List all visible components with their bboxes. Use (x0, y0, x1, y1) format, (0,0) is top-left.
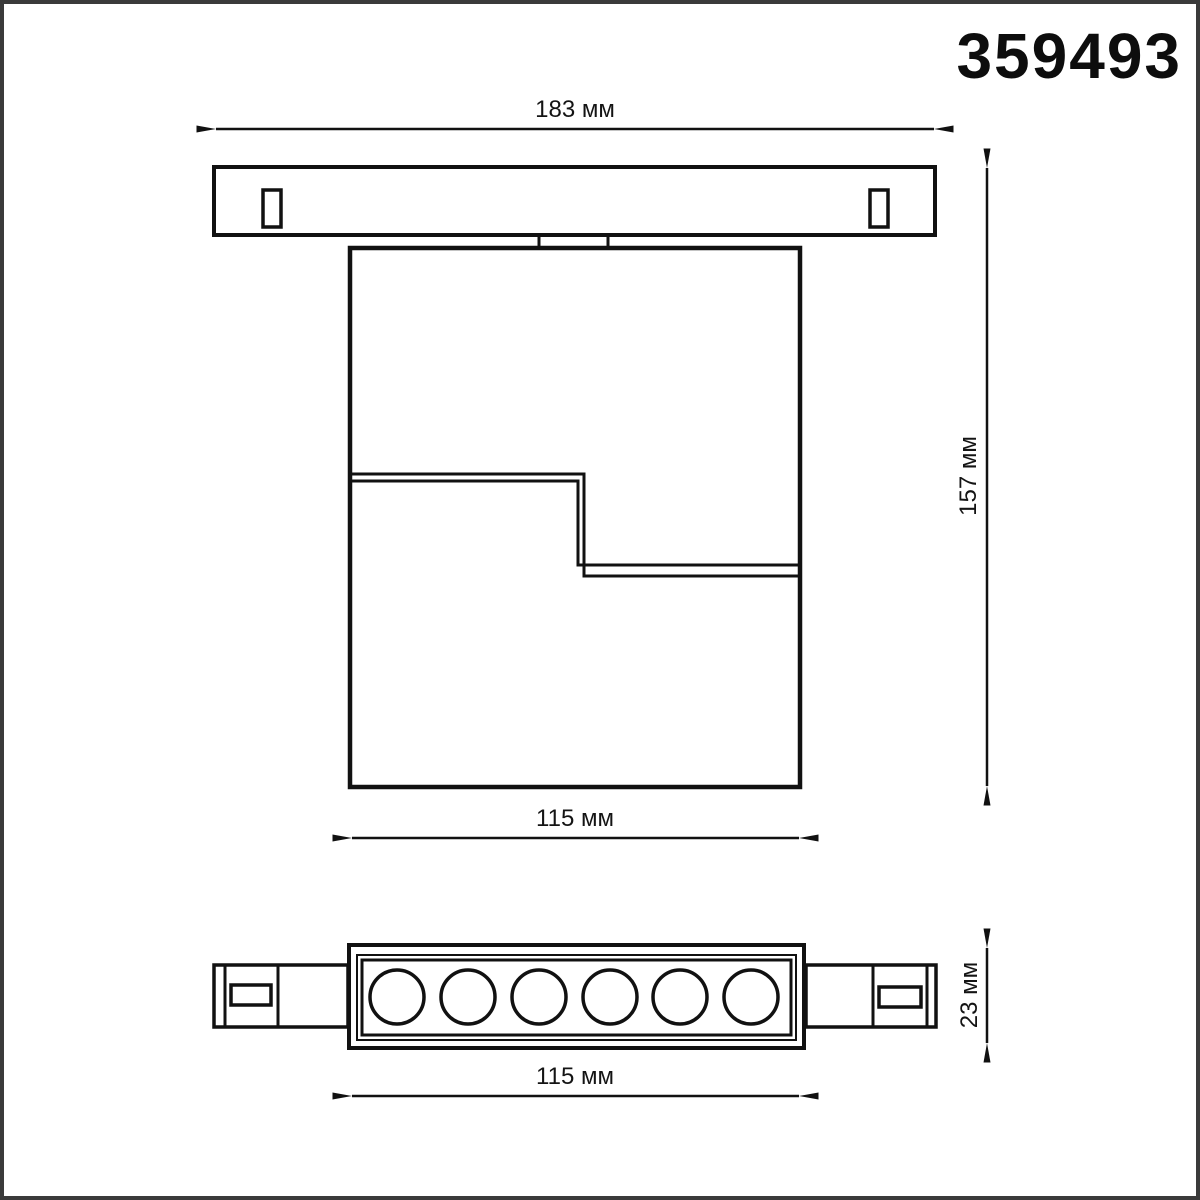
product-code: 359493 (956, 24, 1182, 88)
track-bar (214, 167, 935, 235)
led-lens-5 (653, 970, 707, 1024)
lamp-head-inner-frame (362, 960, 791, 1035)
fixture-body (350, 248, 800, 787)
led-lens-1 (370, 970, 424, 1024)
bottom-slot-right (879, 987, 921, 1007)
bottom-track-arm-right (806, 965, 936, 1027)
dimension-drawing (0, 0, 1200, 1200)
dim-label-head-thickness: 23 мм (957, 962, 983, 1028)
led-lens-6 (724, 970, 778, 1024)
track-adapter (539, 236, 608, 247)
dim-label-head-length: 115 мм (536, 1064, 614, 1090)
swivel-joint-outer-line (350, 474, 798, 576)
led-lens-3 (512, 970, 566, 1024)
swivel-joint-inner-line (350, 481, 798, 565)
dim-label-overall-height: 157 мм (956, 436, 982, 516)
dim-label-body-width: 115 мм (536, 806, 614, 832)
mounting-slot-left (263, 190, 281, 227)
bottom-track-arm-left (214, 965, 348, 1027)
led-lens-4 (583, 970, 637, 1024)
led-lens-2 (441, 970, 495, 1024)
bottom-slot-left (231, 985, 271, 1005)
dim-label-track-length: 183 мм (535, 97, 615, 123)
mounting-slot-right (870, 190, 888, 227)
technical-drawing-page: 359493 183 мм 157 мм 115 мм 23 мм 115 мм (0, 0, 1200, 1200)
